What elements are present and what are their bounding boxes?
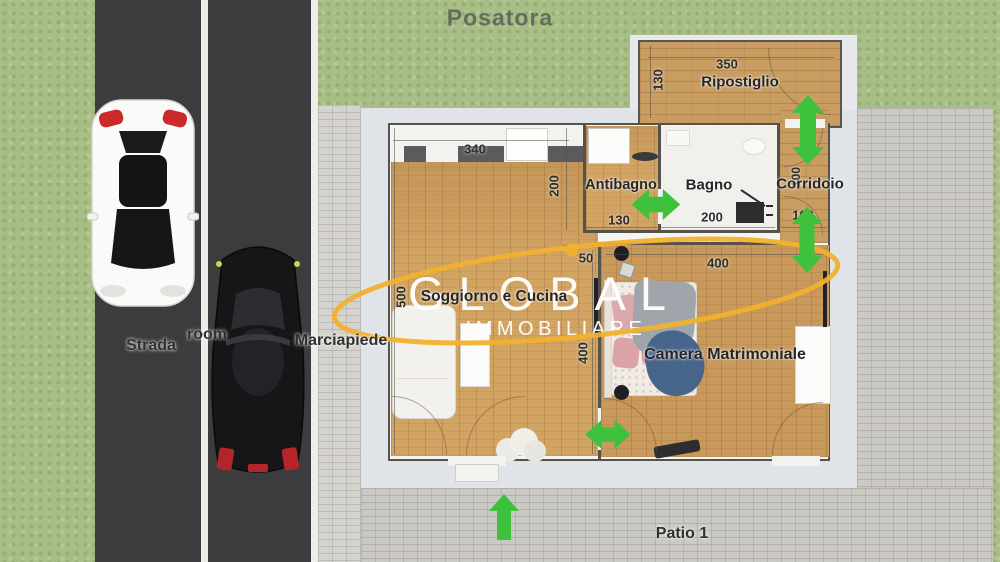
nightstand-lamp-bottom — [614, 385, 629, 400]
dim-400-camera: 400 — [707, 256, 729, 271]
label-room: room — [187, 326, 227, 344]
label-corridoio: Corridoio — [776, 176, 844, 193]
page-title: Posatora — [447, 5, 553, 32]
dim-350: 350 — [716, 57, 738, 72]
washing-machine — [588, 128, 630, 164]
label-strada: Strada — [126, 337, 176, 355]
floorplan-canvas: GLOBAL IMMOBILIARE Posatora 350 Ripostig… — [0, 0, 1000, 562]
white-car-image — [87, 95, 199, 311]
black-car-image — [206, 232, 310, 482]
antibagno-sink — [632, 152, 658, 161]
patio-door-opening — [772, 456, 820, 466]
dim-500: 500 — [394, 286, 409, 308]
door-arrow-corridoio-camera-icon — [790, 207, 824, 273]
dim-line-350 — [648, 57, 834, 58]
label-ripostiglio: Ripostiglio — [701, 74, 779, 91]
dim-340: 340 — [464, 142, 486, 157]
label-soggiorno: Soggiorno e Cucina — [421, 288, 567, 306]
entrance-threshold — [455, 464, 499, 482]
dim-50: 50 — [579, 251, 593, 266]
dim-200-kitchen: 200 — [547, 175, 562, 197]
door-arrow-antibagno-bagno-icon — [631, 188, 681, 221]
door-arrow-soggiorno-camera-icon — [584, 419, 632, 450]
label-bagno: Bagno — [686, 177, 733, 194]
entrance-arrow-icon — [489, 494, 519, 540]
dim-line-200-kitchen — [566, 128, 567, 230]
label-marciapiede: Marciapiede — [295, 332, 387, 350]
door-arrow-ripostiglio-icon — [791, 94, 825, 166]
kitchen-counter-1 — [404, 146, 426, 162]
dim-400-side: 400 — [576, 342, 591, 364]
label-camera: Camera Matrimoniale — [644, 346, 806, 364]
bagno-leader-line — [735, 188, 775, 224]
dim-130-antibagno: 130 — [608, 213, 630, 228]
watermark-dot — [566, 244, 579, 257]
bagno-sink — [666, 130, 690, 146]
road-edge-line — [311, 0, 318, 562]
dim-line-200-bagno — [661, 227, 775, 228]
label-patio: Patio 1 — [656, 525, 708, 543]
sofa-cushion-line-2 — [398, 378, 448, 379]
bagno-toilet — [742, 138, 766, 155]
dim-130-ripostiglio: 130 — [651, 69, 666, 91]
dim-200-bagno: 200 — [701, 210, 723, 225]
kitchen-fridge — [506, 128, 548, 161]
